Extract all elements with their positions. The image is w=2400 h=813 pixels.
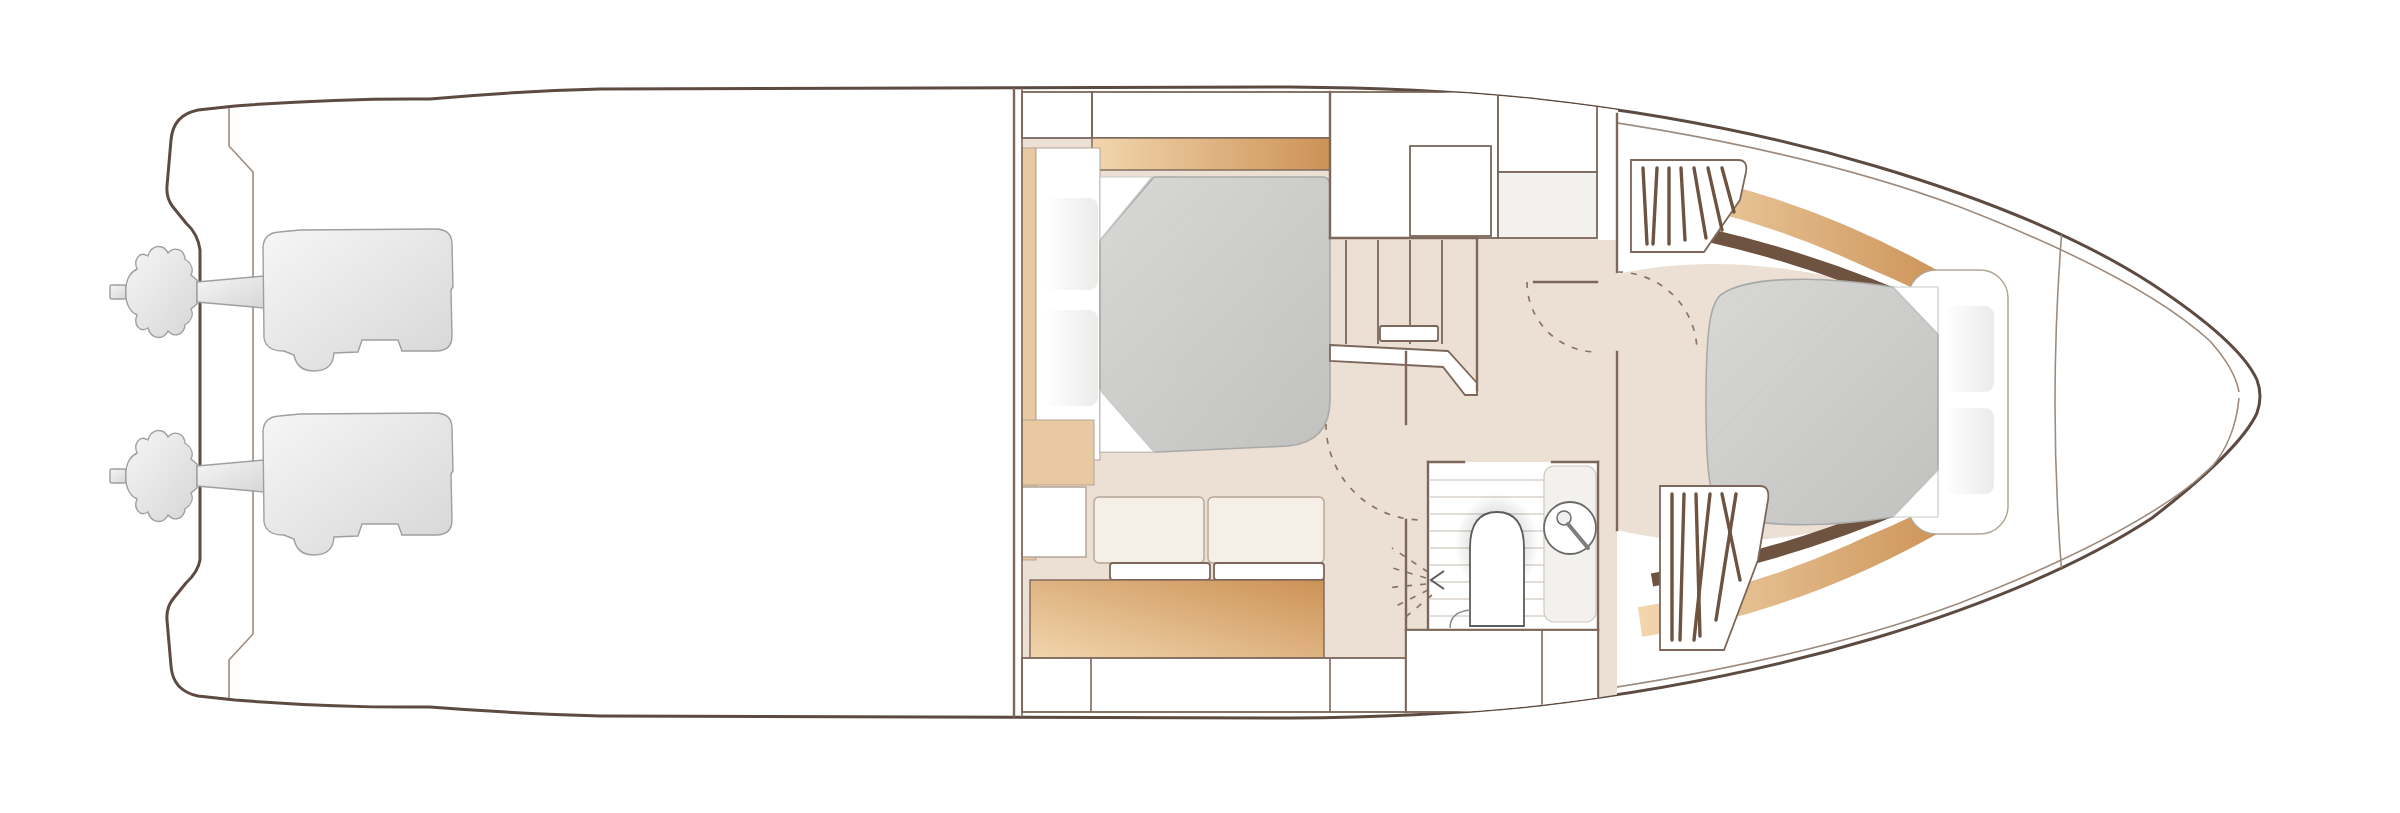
under-counter-lockers bbox=[1406, 630, 1598, 712]
overhead-cabinet-left bbox=[1022, 92, 1092, 138]
starboard-engine bbox=[110, 413, 453, 555]
toilet bbox=[1470, 512, 1524, 626]
overhead-cabinet-long bbox=[1092, 92, 1330, 138]
storage-chest-tan bbox=[1030, 580, 1324, 660]
mid-pillow-top bbox=[1044, 198, 1098, 290]
floorplan-svg bbox=[0, 0, 2400, 813]
nightstand-tan bbox=[1022, 420, 1094, 485]
sofa-seat-rail-left bbox=[1110, 563, 1210, 580]
mid-pillow-bottom bbox=[1044, 310, 1098, 406]
yacht-floorplan-page bbox=[0, 0, 2400, 813]
sofa-seat-rail-right bbox=[1214, 563, 1324, 580]
forward-pillow-bottom bbox=[1944, 408, 1994, 494]
headboard-shelf-tan bbox=[1092, 138, 1330, 170]
stair-cabinet-inset bbox=[1410, 146, 1491, 236]
mid-cabinet-lower bbox=[1498, 172, 1597, 238]
forward-pillow-top bbox=[1944, 306, 1994, 392]
pillow-platform bbox=[1036, 148, 1100, 460]
port-engine bbox=[110, 229, 453, 371]
wardrobe-gap-panel bbox=[1598, 90, 1618, 240]
aft-lockers-midcabin bbox=[1022, 658, 1406, 712]
stair-handrail bbox=[1380, 326, 1438, 341]
sofa-cushion-right bbox=[1208, 497, 1324, 563]
mid-bed-texture bbox=[1100, 177, 1330, 452]
sofa-cushion-left bbox=[1094, 497, 1204, 563]
side-unit-white bbox=[1022, 487, 1086, 557]
